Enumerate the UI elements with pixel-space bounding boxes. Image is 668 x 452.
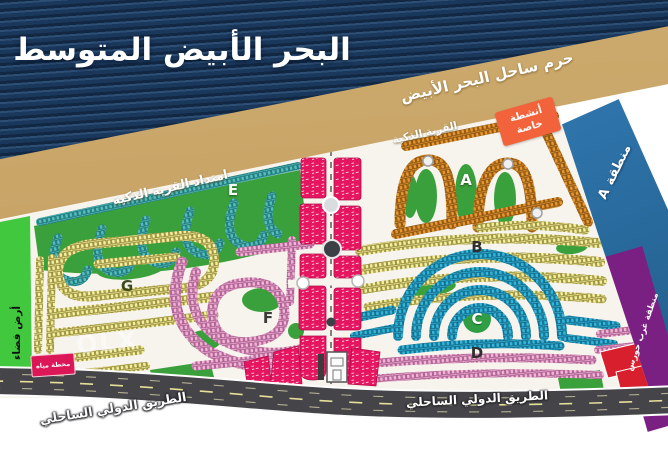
zone-letter-g: G — [121, 277, 133, 295]
zone-letter-e: E — [228, 181, 238, 199]
zone-letter-a: A — [460, 171, 472, 189]
vacant-land-label: أرض فضاء — [11, 306, 23, 360]
sea-title: البحر الأبيض المتوسط — [13, 32, 350, 68]
zone-letter-c: C — [471, 310, 482, 328]
zone-letter-f: F — [263, 309, 273, 327]
zone-letter-d: D — [471, 344, 483, 362]
masterplan-map: البحر الأبيض المتوسط حرم ساحل البحر الأب… — [0, 0, 668, 452]
water-station-badge: محطة مياه — [30, 352, 75, 377]
entrance-gate-icon — [318, 352, 347, 382]
zone-letter-b: B — [471, 238, 482, 256]
watermark-text: OLX — [75, 325, 140, 359]
